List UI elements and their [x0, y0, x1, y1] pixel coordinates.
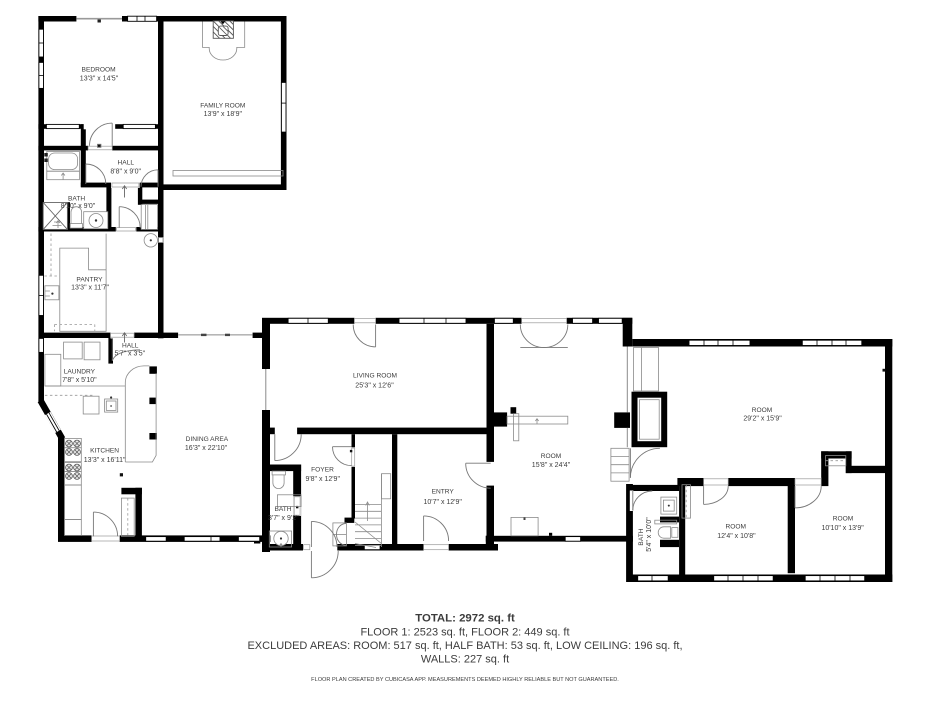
svg-text:16'3" x 22'10": 16'3" x 22'10"	[185, 445, 228, 452]
svg-text:LAUNDRY: LAUNDRY	[64, 368, 96, 375]
svg-text:FAMILY ROOM: FAMILY ROOM	[200, 103, 245, 110]
svg-text:WALLS: 227 sq. ft: WALLS: 227 sq. ft	[421, 654, 509, 666]
svg-text:BEDROOM: BEDROOM	[82, 67, 116, 74]
svg-text:HALL: HALL	[122, 342, 139, 349]
svg-text:ROOM: ROOM	[833, 515, 854, 522]
svg-text:7'8" x 5'10": 7'8" x 5'10"	[62, 377, 97, 384]
svg-text:13'3" x 14'5": 13'3" x 14'5"	[80, 76, 119, 83]
svg-text:HALL: HALL	[118, 160, 135, 167]
svg-text:3'7" x 9'2": 3'7" x 9'2"	[268, 515, 299, 522]
svg-text:10'7" x 12'9": 10'7" x 12'9"	[424, 499, 463, 506]
svg-text:10'10" x 13'9": 10'10" x 13'9"	[821, 525, 864, 532]
svg-text:5'7" x 3'5": 5'7" x 3'5"	[114, 351, 145, 358]
svg-text:13'3" x 11'7": 13'3" x 11'7"	[71, 284, 109, 291]
svg-text:ENTRY: ENTRY	[432, 488, 455, 495]
svg-text:EXCLUDED AREAS: ROOM: 517 sq.: EXCLUDED AREAS: ROOM: 517 sq. ft, HALF B…	[247, 640, 682, 652]
svg-text:13'3" x 16'11": 13'3" x 16'11"	[84, 457, 126, 464]
svg-text:9'8" x 12'9": 9'8" x 12'9"	[305, 476, 340, 483]
svg-text:BATH: BATH	[274, 506, 291, 513]
svg-text:5'4" x 10'0": 5'4" x 10'0"	[646, 517, 653, 552]
svg-text:15'8" x 24'4": 15'8" x 24'4"	[532, 462, 571, 469]
svg-text:8'10" x 9'0": 8'10" x 9'0"	[61, 203, 96, 210]
svg-text:DINING AREA: DINING AREA	[186, 436, 229, 443]
svg-text:FLOOR PLAN CREATED BY CUBICASA: FLOOR PLAN CREATED BY CUBICASA APP. MEAS…	[311, 677, 619, 683]
svg-text:LIVING ROOM: LIVING ROOM	[353, 373, 397, 380]
svg-text:ROOM: ROOM	[726, 523, 747, 530]
svg-text:KITCHEN: KITCHEN	[90, 447, 119, 454]
svg-text:ROOM: ROOM	[541, 453, 562, 460]
svg-text:12'4" x 10'8": 12'4" x 10'8"	[717, 533, 756, 540]
svg-text:13'9" x 18'9": 13'9" x 18'9"	[204, 111, 243, 118]
svg-text:PANTRY: PANTRY	[76, 276, 103, 283]
svg-text:ROOM: ROOM	[752, 407, 773, 414]
svg-text:8'8" x 9'0": 8'8" x 9'0"	[110, 168, 141, 175]
svg-text:BATH: BATH	[638, 528, 645, 545]
svg-text:FLOOR 1: 2523 sq. ft, FLOOR 2:: FLOOR 1: 2523 sq. ft, FLOOR 2: 449 sq. f…	[360, 627, 569, 639]
svg-text:25'3" x 12'6": 25'3" x 12'6"	[355, 382, 394, 389]
svg-text:29'2" x 15'9": 29'2" x 15'9"	[743, 416, 782, 423]
svg-text:BATH: BATH	[68, 196, 85, 203]
svg-text:TOTAL: 2972 sq. ft: TOTAL: 2972 sq. ft	[415, 613, 515, 625]
svg-text:FOYER: FOYER	[311, 466, 334, 473]
